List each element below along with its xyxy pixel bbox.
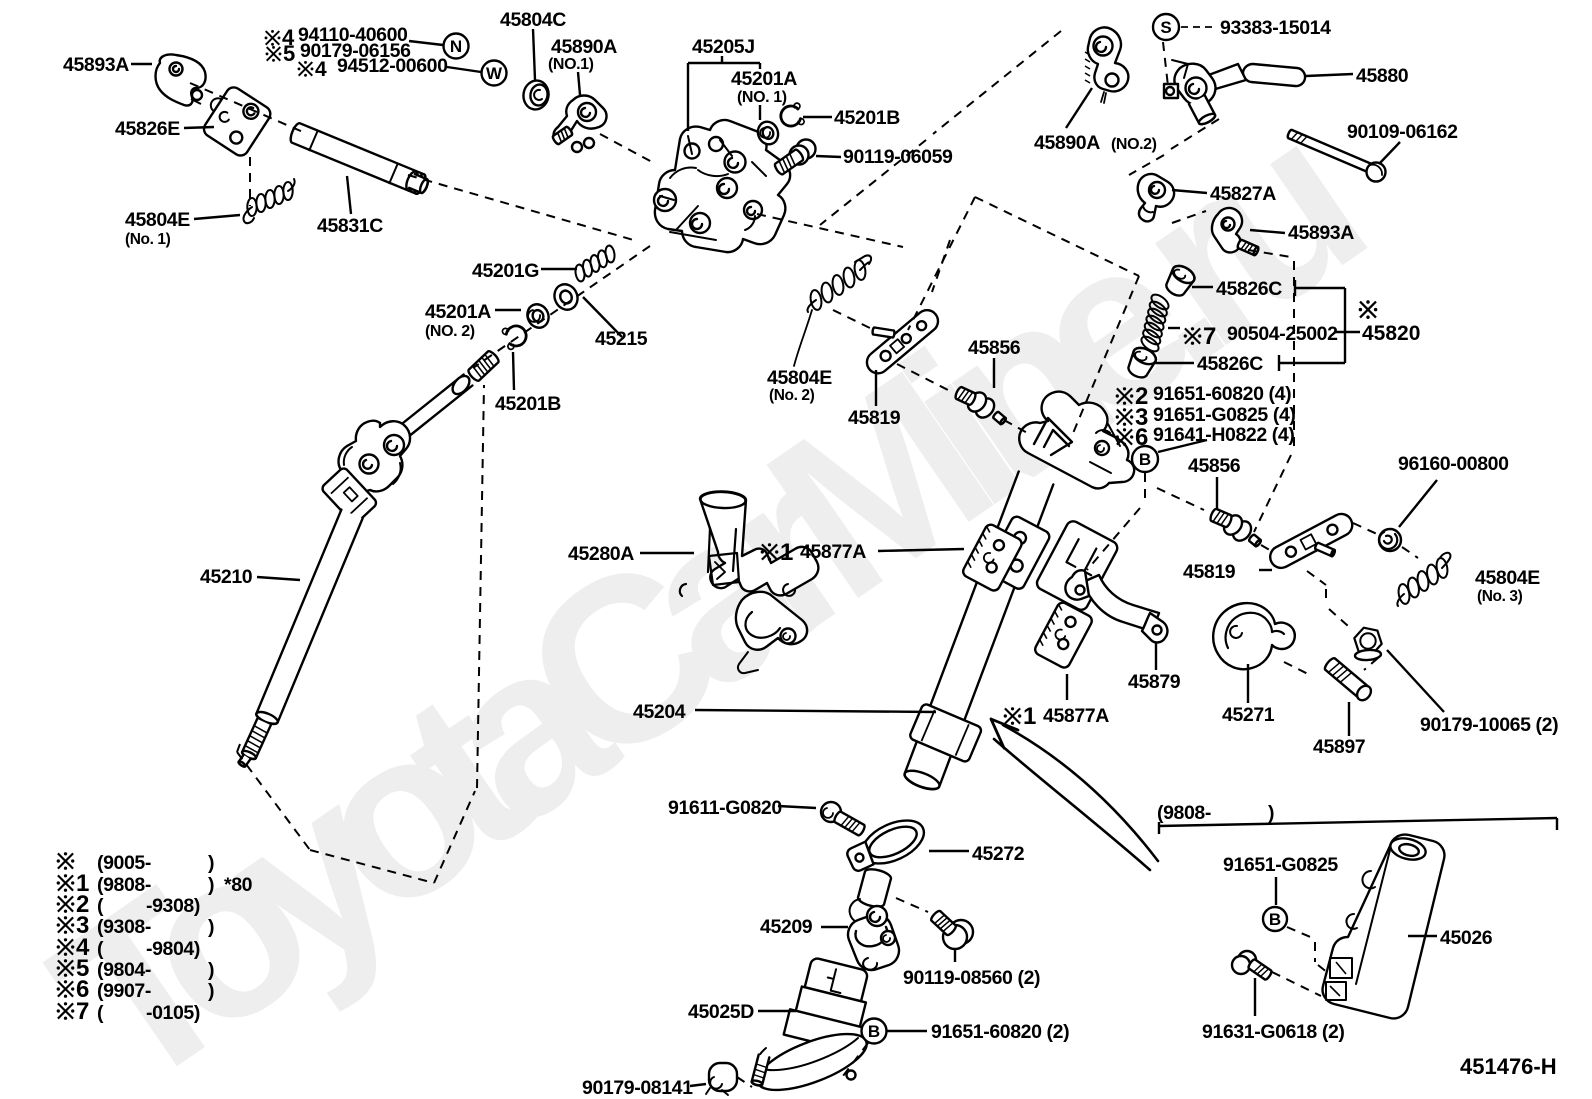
svg-text:45879: 45879 bbox=[1128, 671, 1181, 693]
svg-text:(NO. 1): (NO. 1) bbox=[737, 89, 787, 106]
svg-text:90179-08141: 90179-08141 bbox=[582, 1077, 693, 1099]
svg-text:45201B: 45201B bbox=[834, 107, 900, 129]
svg-text:96160-00800: 96160-00800 bbox=[1398, 453, 1509, 475]
svg-text:(: ( bbox=[97, 895, 104, 917]
svg-text:-9308): -9308) bbox=[146, 895, 200, 917]
svg-text:7: 7 bbox=[1203, 323, 1216, 350]
svg-text:): ) bbox=[1268, 802, 1274, 824]
svg-text:(NO.1): (NO.1) bbox=[548, 56, 594, 73]
svg-text:45893A: 45893A bbox=[63, 54, 129, 76]
svg-text:91651-60820 (2): 91651-60820 (2) bbox=[931, 1021, 1069, 1043]
svg-text:(: ( bbox=[97, 1002, 104, 1024]
svg-text:91641-H0822 (4): 91641-H0822 (4) bbox=[1153, 424, 1294, 446]
svg-text:45804E: 45804E bbox=[125, 209, 190, 231]
svg-text:45026: 45026 bbox=[1440, 927, 1493, 949]
svg-text:451476-H: 451476-H bbox=[1460, 1054, 1557, 1079]
svg-text:7: 7 bbox=[76, 998, 89, 1025]
svg-text:-0105): -0105) bbox=[146, 1002, 200, 1024]
svg-text:(9005-: (9005- bbox=[97, 852, 151, 874]
svg-text:S: S bbox=[1160, 18, 1171, 37]
svg-text:(NO.2): (NO.2) bbox=[1111, 136, 1157, 153]
svg-text:90119-08560 (2): 90119-08560 (2) bbox=[903, 967, 1040, 989]
svg-text:45201B: 45201B bbox=[495, 393, 561, 415]
svg-text:(No. 2): (No. 2) bbox=[769, 387, 815, 404]
svg-text:B: B bbox=[1269, 910, 1281, 929]
svg-text:91651-60820 (4): 91651-60820 (4) bbox=[1153, 383, 1291, 405]
svg-text:(No. 3): (No. 3) bbox=[1477, 588, 1523, 605]
svg-text:94512-00600: 94512-00600 bbox=[337, 55, 448, 77]
svg-text:45890A: 45890A bbox=[1034, 132, 1100, 154]
svg-text:): ) bbox=[208, 959, 214, 981]
svg-text:45819: 45819 bbox=[1183, 561, 1236, 583]
svg-text:(NO. 2): (NO. 2) bbox=[425, 323, 475, 340]
svg-text:*80: *80 bbox=[224, 874, 253, 896]
svg-text:45025D: 45025D bbox=[688, 1001, 754, 1023]
svg-text:(No. 1): (No. 1) bbox=[125, 231, 171, 248]
svg-text:45215: 45215 bbox=[595, 328, 648, 350]
svg-text:91611-G0820: 91611-G0820 bbox=[668, 797, 782, 819]
svg-text:45827A: 45827A bbox=[1210, 183, 1276, 205]
svg-text:45201A: 45201A bbox=[731, 68, 797, 90]
svg-text:N: N bbox=[450, 37, 462, 56]
svg-text:45205J: 45205J bbox=[692, 36, 755, 58]
svg-text:45826C: 45826C bbox=[1216, 278, 1282, 300]
svg-text:B: B bbox=[868, 1022, 880, 1041]
svg-text:90179-10065 (2): 90179-10065 (2) bbox=[1420, 714, 1558, 736]
svg-text:): ) bbox=[208, 916, 214, 938]
svg-text:-9804): -9804) bbox=[146, 938, 200, 960]
svg-text:45877A: 45877A bbox=[1043, 705, 1109, 727]
svg-text:): ) bbox=[208, 852, 214, 874]
svg-text:45856: 45856 bbox=[1188, 455, 1241, 477]
svg-text:45819: 45819 bbox=[848, 407, 901, 429]
svg-text:(9804-: (9804- bbox=[97, 959, 151, 981]
svg-text:45209: 45209 bbox=[760, 916, 813, 938]
svg-text:45826E: 45826E bbox=[115, 118, 180, 140]
svg-text:): ) bbox=[208, 980, 214, 1002]
svg-text:5: 5 bbox=[283, 41, 295, 66]
svg-text:B: B bbox=[1139, 450, 1151, 469]
svg-text:45831C: 45831C bbox=[317, 215, 383, 237]
svg-text:(9808-: (9808- bbox=[97, 874, 151, 896]
svg-text:45897: 45897 bbox=[1313, 736, 1365, 758]
svg-text:45272: 45272 bbox=[972, 843, 1025, 865]
svg-text:45201A: 45201A bbox=[425, 301, 491, 323]
svg-text:45893A: 45893A bbox=[1288, 222, 1354, 244]
svg-text:93383-15014: 93383-15014 bbox=[1220, 17, 1331, 39]
svg-text:90504-25002: 90504-25002 bbox=[1227, 323, 1338, 345]
svg-text:45856: 45856 bbox=[968, 337, 1021, 359]
svg-text:(9308-: (9308- bbox=[97, 916, 151, 938]
svg-text:45804C: 45804C bbox=[500, 9, 566, 31]
svg-text:45271: 45271 bbox=[1222, 704, 1275, 726]
svg-text:45280A: 45280A bbox=[568, 543, 634, 565]
svg-text:91631-G0618 (2): 91631-G0618 (2) bbox=[1202, 1021, 1345, 1043]
svg-text:4: 4 bbox=[315, 58, 327, 81]
svg-text:91651-G0825 (4): 91651-G0825 (4) bbox=[1153, 404, 1296, 426]
svg-text:45890A: 45890A bbox=[551, 36, 617, 58]
svg-text:(: ( bbox=[97, 938, 104, 960]
svg-text:45210: 45210 bbox=[200, 566, 253, 588]
svg-text:45201G: 45201G bbox=[472, 260, 539, 282]
svg-text:): ) bbox=[208, 874, 214, 896]
svg-text:91651-G0825: 91651-G0825 bbox=[1223, 854, 1338, 876]
svg-text:1: 1 bbox=[780, 539, 793, 566]
svg-text:45826C: 45826C bbox=[1197, 353, 1263, 375]
svg-text:45204: 45204 bbox=[633, 701, 686, 723]
svg-text:45820: 45820 bbox=[1362, 322, 1420, 345]
svg-text:(9907-: (9907- bbox=[97, 980, 151, 1002]
svg-text:45877A: 45877A bbox=[800, 541, 866, 563]
svg-text:(9808-: (9808- bbox=[1157, 802, 1211, 824]
svg-text:45804E: 45804E bbox=[767, 367, 832, 389]
svg-text:45880: 45880 bbox=[1356, 65, 1409, 87]
svg-text:90119-06059: 90119-06059 bbox=[843, 146, 953, 168]
svg-text:90109-06162: 90109-06162 bbox=[1347, 121, 1458, 143]
svg-text:1: 1 bbox=[1023, 703, 1036, 730]
svg-text:W: W bbox=[486, 64, 503, 83]
svg-text:45804E: 45804E bbox=[1475, 567, 1540, 589]
